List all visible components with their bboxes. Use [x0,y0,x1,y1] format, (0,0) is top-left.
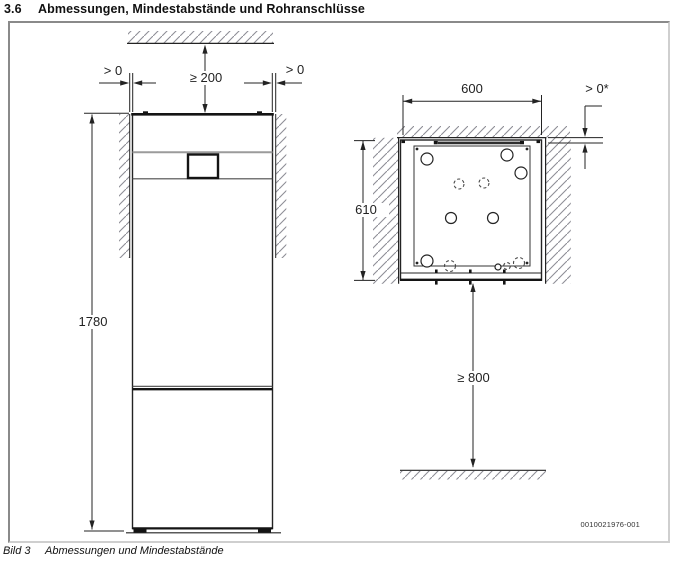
figure-caption: Bild 3 Abmessungen und Mindestabstände [3,545,224,557]
wall-right-hatch [276,114,287,258]
label-front-service-clearance: ≥ 800 [450,371,497,385]
figure-caption-text: Abmessungen und Mindestabstände [45,545,224,557]
unit-top-view [400,140,542,285]
label-left-wall-clearance: > 0 [96,64,130,78]
dim-right-wall-clearance [244,73,302,112]
unit-foot [134,529,147,532]
label-rear-wall-clearance: > 0* [579,82,615,96]
label-unit-depth: 610 [343,203,389,217]
unit-front-view [126,111,281,533]
wall-left-hatch [119,114,130,258]
label-ceiling-clearance: ≥ 200 [183,71,229,85]
top-panel-clip [143,111,148,114]
label-unit-height: 1780 [70,315,116,329]
manual-page: 3.6 Abmessungen, Mindestabstände und Roh… [0,0,681,564]
control-display [188,155,218,179]
document-number: 0010021976-001 [538,520,640,529]
unit-foot [258,529,271,532]
figure-caption-label: Bild 3 [3,545,45,557]
top-view [354,95,603,480]
front-clearance-hatch [400,471,546,480]
label-right-wall-clearance: > 0 [278,63,312,77]
top-panel-clip [257,111,262,114]
ceiling-hatch [127,31,274,43]
front-view [84,31,302,533]
label-unit-width: 600 [450,82,494,96]
dim-left-wall-clearance [99,73,156,112]
